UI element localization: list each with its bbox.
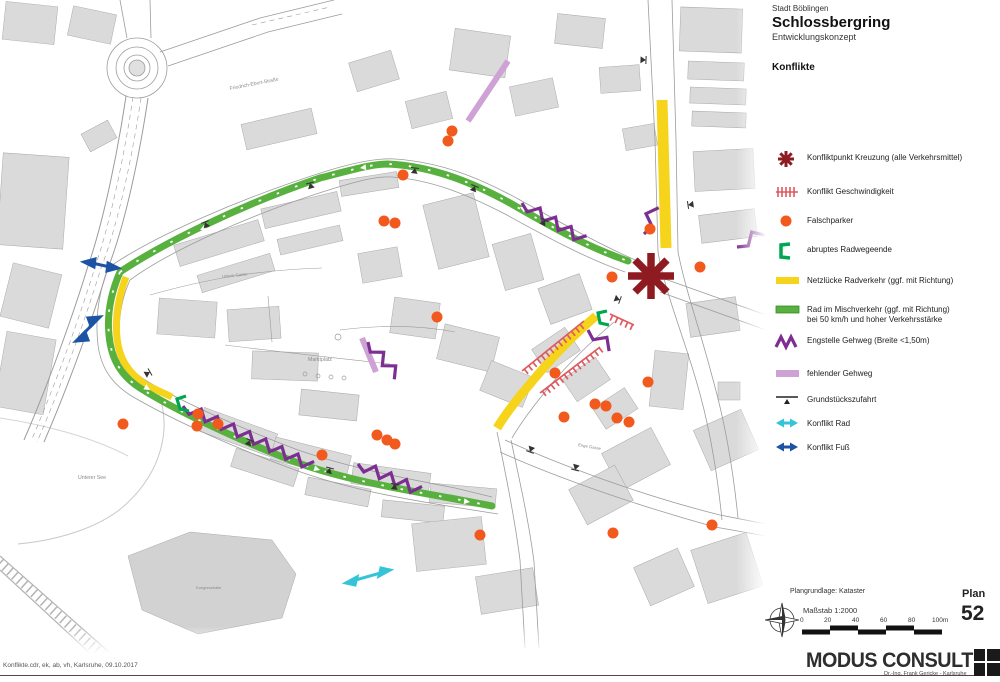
svg-text:0: 0 xyxy=(800,617,804,624)
legend-label: Netzlücke Radverkehr (ggf. mit Richtung) xyxy=(807,272,953,286)
green-mixed-bar-icon xyxy=(773,301,807,324)
bike-conflict-arrow xyxy=(346,568,390,585)
street-label: Marktplatz xyxy=(308,357,332,363)
legend-row: Konflikt Geschwindigkeit xyxy=(773,183,999,206)
svg-text:20: 20 xyxy=(824,617,832,624)
legend-label: Falschparker xyxy=(807,212,853,226)
legend-row: Netzlücke Radverkehr (ggf. mit Richtung) xyxy=(773,272,999,295)
narrow-sidewalk-zigzag-icon xyxy=(773,332,807,357)
legend-row: Grundstückszufahrt xyxy=(773,391,999,412)
title-block: Stadt Böblingen Schlossbergring Entwickl… xyxy=(772,4,996,73)
legend-label: Konflikt Geschwindigkeit xyxy=(807,183,894,197)
missing-sidewalk-bar-icon xyxy=(773,365,807,388)
scale-bar: 0 20 40 60 80 100m xyxy=(800,616,960,638)
bikepath-end-bracket-icon xyxy=(773,241,807,266)
legend-row: Konfliktpunkt Kreuzung (alle Verkehrsmit… xyxy=(773,149,999,174)
company-logo-mark xyxy=(974,649,1000,676)
speed-conflict-icon xyxy=(773,183,807,206)
wrong-parking-dot-icon xyxy=(773,212,807,235)
svg-text:60: 60 xyxy=(880,617,888,624)
svg-text:100m: 100m xyxy=(932,617,948,624)
svg-text:80: 80 xyxy=(908,617,916,624)
street-label: Kongresshalle xyxy=(196,585,222,590)
legend-label: Konflikt Fuß xyxy=(807,439,850,453)
plan-title: Schlossbergring xyxy=(772,14,996,31)
legend-label: Konfliktpunkt Kreuzung (alle Verkehrsmit… xyxy=(807,149,962,163)
plan-sheet: Friedrich-Ebert-Straße Untere Gasse Mark… xyxy=(0,0,1000,682)
legend: Konfliktpunkt Kreuzung (alle Verkehrsmit… xyxy=(773,149,999,460)
street-labels: Friedrich-Ebert-Straße Untere Gasse Mark… xyxy=(78,77,602,590)
plan-number-label: Plan xyxy=(962,588,985,600)
terrain-layer xyxy=(0,392,164,654)
legend-row: abruptes Radwegeende xyxy=(773,241,999,266)
bike-conflict-arrow-icon xyxy=(773,415,807,436)
legend-label: Engstelle Gehweg (Breite <1,50m) xyxy=(807,332,930,346)
legend-row: fehlender Gehweg xyxy=(773,365,999,388)
file-note: Konflikte.cdr, ek, ab, vh, Karlsruhe, 09… xyxy=(3,662,138,669)
legend-row: Rad im Mischverkehr (ggf. mit Richtung)b… xyxy=(773,301,999,325)
svg-text:40: 40 xyxy=(852,617,860,624)
plan-number: 52 xyxy=(961,602,984,626)
compass-icon xyxy=(765,600,799,640)
legend-row: Konflikt Rad xyxy=(773,415,999,436)
company-name: MODUS CONSULT xyxy=(806,649,988,673)
legend-label: abruptes Radwegeende xyxy=(807,241,892,255)
street-label: Unterer See xyxy=(78,475,106,481)
conflict-star-icon xyxy=(773,149,807,174)
map-fade-right xyxy=(736,0,766,654)
plan-subtitle: Entwicklungskonzept xyxy=(772,32,996,42)
legend-label: Konflikt Rad xyxy=(807,415,850,429)
scale-label: Maßstab 1:2000 xyxy=(803,606,857,615)
map-canvas: Friedrich-Ebert-Straße Untere Gasse Mark… xyxy=(0,0,766,654)
section-title: Konflikte xyxy=(772,62,996,73)
map-fade-bottom xyxy=(0,626,766,654)
legend-row: Falschparker xyxy=(773,212,999,235)
street-label: Friedrich-Ebert-Straße xyxy=(229,77,279,92)
legend-row: Engstelle Gehweg (Breite <1,50m) xyxy=(773,332,999,357)
scale-block: Plangrundlage: Kataster Maßstab 1:2000 0… xyxy=(765,586,1000,646)
legend-label: Rad im Mischverkehr (ggf. mit Richtung)b… xyxy=(807,301,950,325)
plan-basis: Plangrundlage: Kataster xyxy=(790,588,865,595)
company-logo: MODUS CONSULT Dr.-Ing. Frank Gericke - K… xyxy=(806,649,1000,679)
city-label: Stadt Böblingen xyxy=(772,4,996,13)
legend-label: fehlender Gehweg xyxy=(807,365,872,379)
yellow-gap-bar-icon xyxy=(773,272,807,295)
foot-conflict-arrow-icon xyxy=(773,439,807,460)
legend-label: Grundstückszufahrt xyxy=(807,391,876,405)
street-label: Enge Gasse xyxy=(578,442,602,451)
company-subtitle: Dr.-Ing. Frank Gericke - Karlsruhe xyxy=(884,671,967,677)
property-access-icon xyxy=(773,391,807,412)
legend-row: Konflikt Fuß xyxy=(773,439,999,460)
